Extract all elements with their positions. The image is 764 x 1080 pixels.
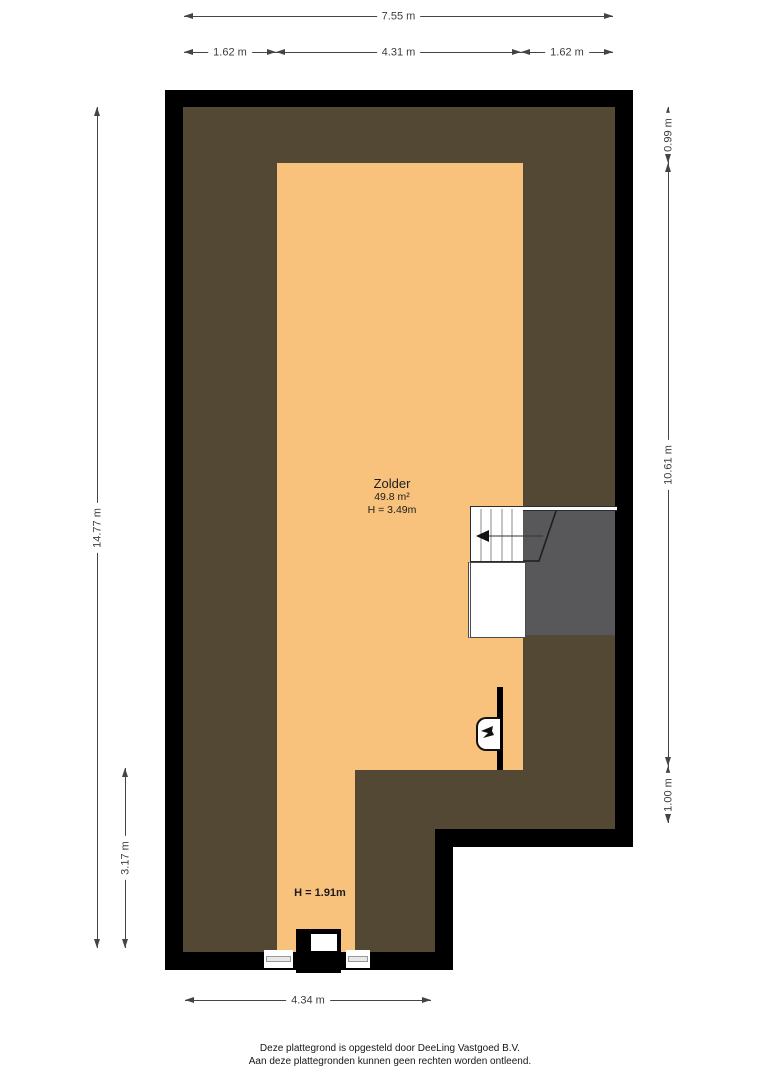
footer: Deze plattegrond is opgesteld door DeeLi… — [16, 1042, 764, 1068]
room-label: Zolder 49.8 m² H = 3.49m — [368, 476, 417, 516]
floorplan-canvas: 7.55 m 1.62 m 4.31 m 1.62 m 14.77 m 3.17… — [0, 0, 764, 1080]
window-glass — [348, 956, 368, 962]
dim-right-middle: 10.61 m — [668, 163, 669, 766]
water-tap-fixture — [476, 717, 500, 751]
dim-label: 14.77 m — [90, 503, 105, 553]
dim-label: 1.62 m — [208, 47, 252, 58]
window-glass — [266, 956, 291, 962]
stairs-treads-box — [470, 507, 523, 562]
dim-right-upper: 0.99 m — [668, 107, 669, 163]
dim-label: 1.00 m — [661, 773, 676, 817]
room-name: Zolder — [368, 476, 417, 491]
room-area: 49.8 m² — [368, 491, 417, 503]
dim-label: 3.17 m — [118, 836, 133, 880]
dim-left-total: 14.77 m — [97, 107, 98, 948]
footer-line2: Aan deze plattegronden kunnen geen recht… — [16, 1055, 764, 1068]
dim-top-left: 1.62 m — [184, 52, 276, 53]
dim-label: 7.55 m — [377, 11, 421, 22]
dim-right-lower: 1.00 m — [668, 766, 669, 823]
dim-top-total: 7.55 m — [184, 16, 613, 17]
dim-label: 4.31 m — [377, 47, 421, 58]
dim-label: 1.62 m — [545, 47, 589, 58]
dim-label: 10.61 m — [661, 440, 676, 490]
dim-top-center: 4.31 m — [276, 52, 521, 53]
stairwell-opening — [468, 562, 526, 638]
low-ceiling-label: H = 1.91m — [294, 887, 346, 899]
footer-line1: Deze plattegrond is opgesteld door DeeLi… — [16, 1042, 764, 1055]
dim-top-right: 1.62 m — [521, 52, 613, 53]
dim-label: 0.99 m — [661, 113, 676, 157]
window-right — [346, 950, 370, 968]
dormer — [296, 929, 341, 973]
dim-label: 4.34 m — [286, 995, 330, 1006]
stairwell-area — [523, 508, 615, 635]
room-ceiling-height: H = 3.49m — [368, 504, 417, 516]
dim-bottom: 4.34 m — [185, 1000, 431, 1001]
dim-left-lower: 3.17 m — [125, 768, 126, 948]
dormer-window — [311, 934, 337, 951]
window-left — [264, 950, 293, 968]
